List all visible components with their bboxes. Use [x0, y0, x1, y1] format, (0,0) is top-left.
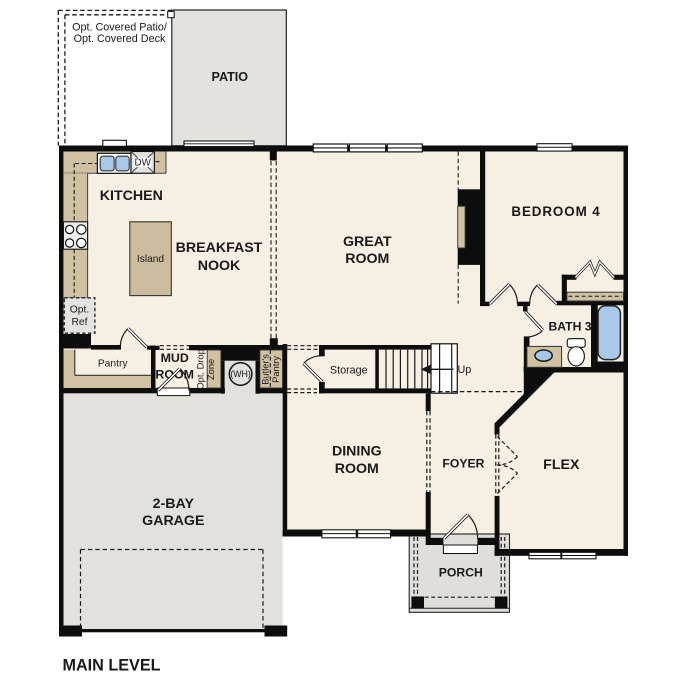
svg-text:FLEX: FLEX: [543, 457, 580, 473]
svg-text:DW: DW: [135, 158, 152, 169]
svg-text:Opt. Covered Deck: Opt. Covered Deck: [74, 33, 166, 45]
svg-text:Ref: Ref: [71, 317, 87, 328]
svg-text:GREAT: GREAT: [343, 234, 392, 250]
svg-text:DINING: DINING: [332, 444, 382, 460]
svg-text:Pantry: Pantry: [271, 356, 281, 383]
svg-text:Storage: Storage: [330, 364, 368, 376]
svg-text:MUD: MUD: [161, 351, 189, 365]
svg-text:Island: Island: [137, 254, 165, 265]
svg-text:FOYER: FOYER: [442, 457, 484, 471]
svg-text:(WH): (WH): [230, 369, 251, 379]
svg-text:Opt. Drop: Opt. Drop: [196, 349, 206, 389]
svg-text:KITCHEN: KITCHEN: [100, 188, 163, 204]
svg-text:PATIO: PATIO: [211, 70, 248, 84]
svg-text:Up: Up: [458, 364, 472, 376]
svg-text:2-BAY: 2-BAY: [153, 496, 195, 512]
svg-text:GARAGE: GARAGE: [142, 513, 204, 529]
svg-text:ROOM: ROOM: [345, 251, 389, 267]
svg-text:NOOK: NOOK: [198, 258, 241, 274]
svg-text:BREAKFAST: BREAKFAST: [176, 240, 263, 256]
svg-text:Zone: Zone: [206, 359, 216, 380]
svg-text:BEDROOM 4: BEDROOM 4: [511, 204, 600, 219]
svg-text:Pantry: Pantry: [98, 358, 129, 369]
svg-text:Opt. Covered Patio/: Opt. Covered Patio/: [72, 22, 167, 34]
svg-text:MAIN LEVEL: MAIN LEVEL: [63, 657, 161, 675]
svg-text:PORCH: PORCH: [439, 566, 483, 580]
svg-text:Butler's: Butler's: [260, 354, 270, 385]
svg-text:BATH 3: BATH 3: [548, 320, 591, 334]
svg-text:Opt.: Opt.: [70, 305, 89, 316]
svg-text:ROOM: ROOM: [335, 461, 379, 477]
